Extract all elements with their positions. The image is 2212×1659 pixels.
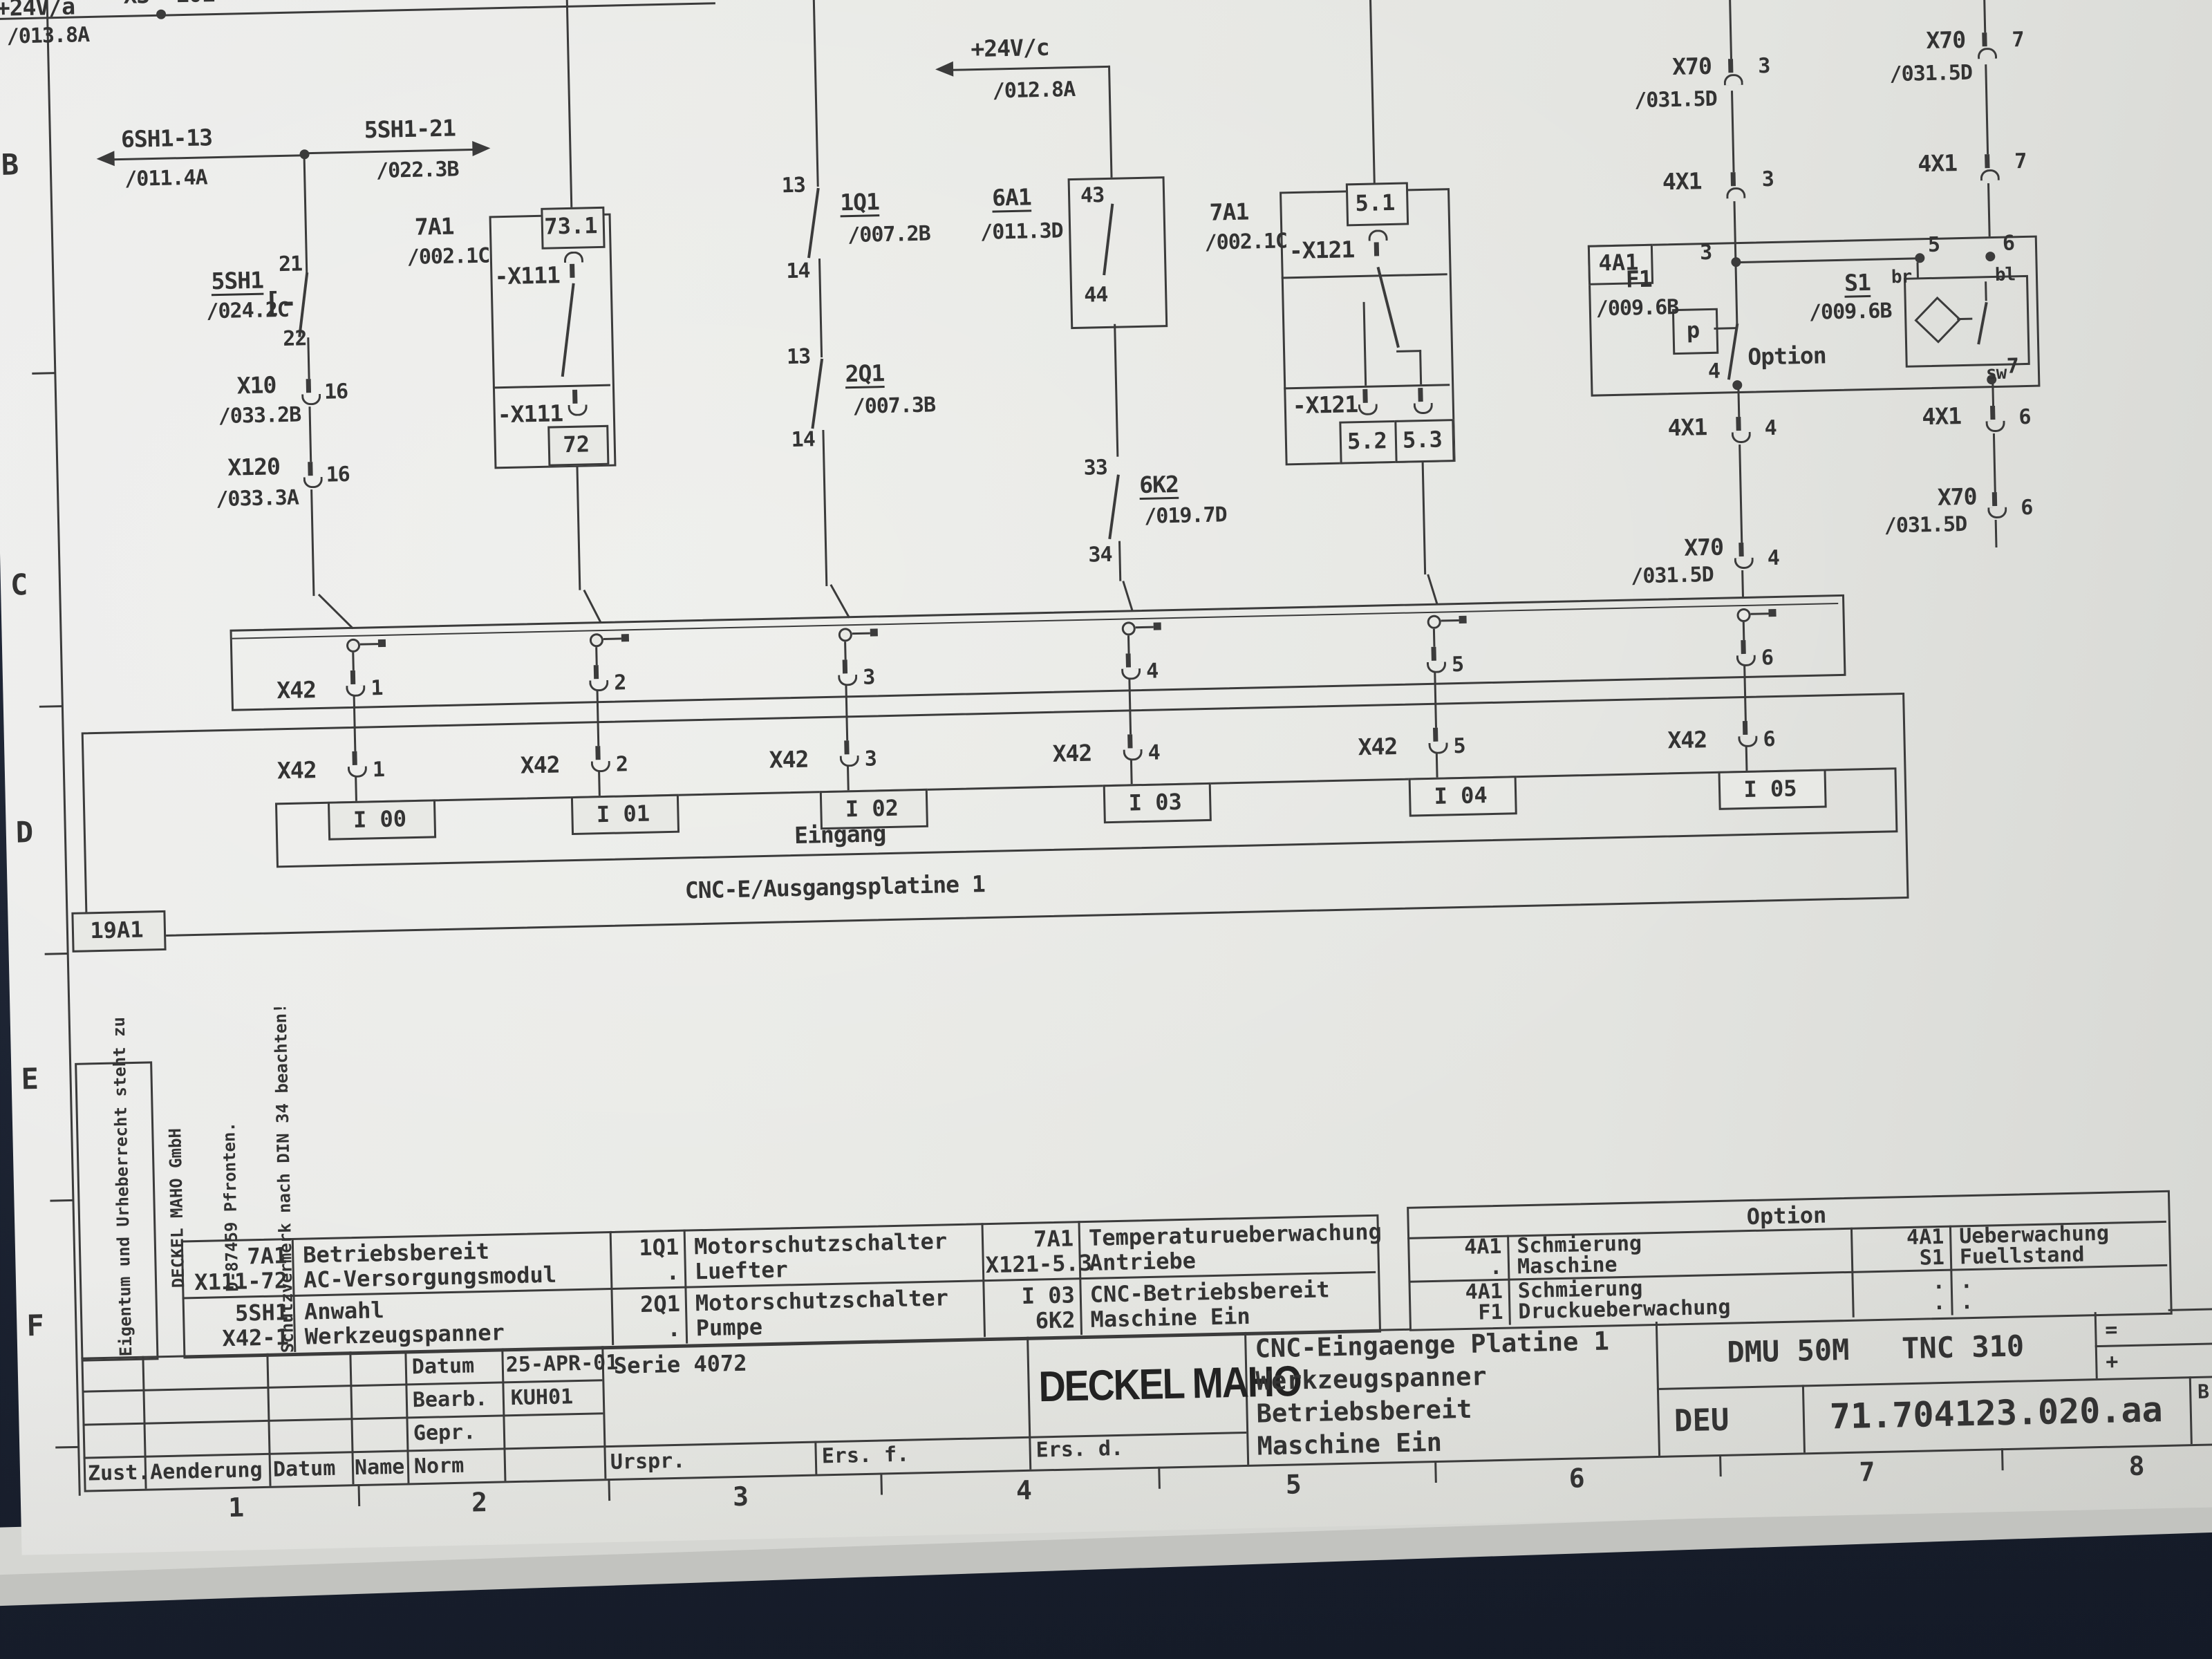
titleblock-line [814, 1441, 817, 1474]
legend-desc: Motorschutzschalter [694, 1228, 948, 1259]
legend-desc: Pumpe [695, 1313, 762, 1341]
input-i02: I 02 [820, 794, 924, 823]
frame-col-1: 1 [228, 1492, 244, 1523]
urspr-label: Urspr. [610, 1448, 686, 1476]
connector-socket-icon [301, 394, 321, 406]
conn-x42-row1: X42 [276, 676, 316, 704]
wire [844, 641, 847, 659]
device-1q1-ref: /007.2B [847, 222, 930, 248]
wire [1743, 622, 1745, 640]
corner-letter: B [2197, 1379, 2210, 1405]
connector-pin-icon [1741, 640, 1745, 654]
connector-pin-icon [1126, 653, 1131, 667]
connector-pin-icon [1374, 242, 1379, 256]
conn-4x1-3-pin: 3 [1761, 167, 1774, 191]
connector-pin-icon [1362, 389, 1367, 403]
connector-socket-icon [1978, 48, 1997, 59]
conn-x70-3-pin: 3 [1758, 54, 1770, 78]
board-ref: 19A1 [72, 916, 162, 944]
connector-socket-icon [1980, 169, 2000, 181]
conn-x42-row2: X42 [520, 751, 559, 778]
connector-socket-icon [303, 477, 323, 489]
contact-pin: 21 [279, 252, 303, 276]
wire [304, 149, 476, 154]
contact-pin: 22 [283, 326, 307, 351]
titleblock-line [2189, 1376, 2193, 1444]
conn-4x1-7: 4X1 [1918, 149, 1957, 177]
wire [303, 154, 308, 273]
datum-value: 25-APR-01 [505, 1350, 618, 1379]
wire [829, 584, 850, 618]
frame-col-4: 4 [1015, 1475, 1031, 1506]
rail-24vc-label: +24V/c [971, 34, 1049, 62]
frame-row-e: E [21, 1062, 38, 1096]
frame-col-7: 7 [1859, 1456, 1875, 1487]
connector-pin-icon [308, 462, 312, 476]
frame-col-3: 3 [733, 1481, 749, 1512]
legend-code: 5SH1 [186, 1299, 289, 1327]
input-strip [229, 594, 1846, 711]
wire-rail-24vc [952, 66, 1109, 71]
drawing-title-line: Betriebsbereit [1256, 1396, 1472, 1427]
connector-pin-icon [1731, 172, 1736, 186]
conn-x120-ref: /033.3A [216, 486, 299, 512]
input-i05: I 05 [1718, 775, 1823, 803]
junction-dot [156, 10, 166, 19]
contact-pin: 14 [786, 259, 810, 283]
ref-5sh1-21: 5SH1-21 [364, 114, 456, 143]
titleblock-line [1027, 1337, 1031, 1470]
rail-24va-label: +24V/a [0, 0, 75, 21]
machine-model: DMU 50M TNC 310 [1656, 1331, 2095, 1367]
connector-pin-icon [1743, 721, 1747, 735]
conn-4x1-4: 4X1 [1667, 413, 1707, 441]
connector-pin-icon [843, 659, 847, 673]
ref-6sh1-13-sheet: /011.4A [124, 165, 207, 191]
option-code: . [1412, 1257, 1503, 1280]
option-desc: Maschine [1517, 1255, 1618, 1277]
conn-x120-pin: 16 [326, 462, 350, 487]
wire [565, 0, 573, 214]
frame-col-5: 5 [1285, 1469, 1301, 1499]
conn-x42-row2-pin: 6 [1763, 727, 1775, 751]
wire [310, 489, 315, 596]
wire [1368, 0, 1376, 190]
wire-color-sw: sw [1986, 363, 2007, 384]
conn-x70-7-pin: 7 [2012, 28, 2024, 52]
rail-24vc-ref: /012.8A [992, 77, 1075, 104]
conn-x70-3: X70 [1672, 53, 1712, 80]
conn-x42-row2: X42 [277, 756, 317, 784]
copyright-line: Eigentum und Urheberrecht steht zu [111, 1062, 135, 1356]
connector-pin-icon [1992, 492, 1997, 506]
conn-x70-6-pin: 6 [2021, 496, 2033, 520]
conn-x10-ref: /033.2B [218, 402, 301, 429]
option-code: S1 [1856, 1248, 1945, 1271]
conn-x42-row2: X42 [769, 746, 808, 774]
connector-pin-icon [844, 740, 849, 754]
terminal-5-3: 5.3 [1395, 426, 1451, 453]
wire [1122, 581, 1134, 612]
wire [1731, 91, 1735, 172]
bearb-value: KUH01 [510, 1384, 573, 1412]
wire [1422, 458, 1427, 574]
contact-stub [360, 643, 378, 646]
contact-square-icon [1459, 616, 1466, 624]
frame-row-b: B [1, 147, 18, 182]
legend-code: 7A1 [985, 1225, 1074, 1253]
datum2-label: Datum [273, 1456, 336, 1483]
connector-pin-icon [1985, 154, 1989, 168]
legend-desc: Motorschutzschalter [695, 1284, 949, 1316]
wire [1108, 66, 1113, 178]
connector-pin-icon [595, 746, 600, 760]
frame-tick [55, 1446, 79, 1449]
contact-square-icon [1768, 609, 1776, 617]
conn-x111-top: -X111 [494, 261, 560, 290]
wire [1985, 64, 1989, 154]
legend-code: X111-72 [185, 1267, 288, 1295]
legend-code: . [615, 1315, 681, 1343]
conn-4x1-6: 4X1 [1922, 402, 1961, 430]
frame-left-border [46, 0, 81, 1496]
legend-code: X121-5.3 [985, 1250, 1074, 1278]
wire [1995, 520, 1998, 547]
frame-tick [358, 1484, 361, 1506]
wire [307, 337, 310, 379]
serie-label: Serie 4072 [613, 1350, 747, 1379]
conn-x121-top: -X121 [1288, 236, 1354, 264]
legend-desc: Antriebe [1089, 1248, 1196, 1276]
pin-4-label: 4 [1707, 359, 1720, 384]
eq-field: = [2105, 1317, 2118, 1343]
connector-socket-icon [1986, 421, 2005, 433]
frame-tick [608, 1479, 610, 1501]
conn-x42-row1-pin: 2 [614, 671, 626, 695]
switch-blade-1q1 [807, 188, 820, 259]
option-code: 4A1 [1412, 1237, 1502, 1259]
connector-socket-icon [1723, 74, 1743, 86]
legend-desc: Luefter [694, 1256, 788, 1284]
copyright-note: Eigentum und Urheberrecht steht zu DECKE… [75, 1062, 154, 1358]
conn-x42-row2-pin: 2 [616, 752, 628, 776]
conn-x70-4: X70 [1684, 534, 1723, 561]
switch-blade-6k2 [1108, 474, 1120, 539]
conn-x10: X10 [236, 371, 276, 399]
legend-code: . [615, 1259, 680, 1286]
input-i00: I 00 [328, 805, 432, 833]
conn-4x1-7-pin: 7 [2014, 149, 2027, 174]
arrow-right-icon [472, 140, 490, 156]
frame-tick [2001, 1448, 2004, 1470]
wire [583, 590, 602, 623]
connector-pin-icon [594, 665, 599, 679]
legend-desc: CNC-Betriebsbereit [1089, 1276, 1330, 1308]
name-label: Name [355, 1454, 405, 1482]
connector-socket-icon [1732, 432, 1751, 444]
contact-pin: 44 [1084, 283, 1108, 308]
contact-pin: 13 [781, 173, 805, 198]
terminal-5-2: 5.2 [1340, 427, 1396, 455]
conn-x70-3-ref: /031.5D [1634, 87, 1717, 113]
contact-square-icon [1154, 622, 1161, 630]
wire [1738, 444, 1743, 543]
contact-pin: 33 [1083, 456, 1107, 480]
wire [818, 259, 823, 357]
plus-field: + [2106, 1349, 2119, 1375]
legend-desc: Anwahl [304, 1297, 384, 1325]
wire-rail-24va [0, 2, 715, 20]
titleblock-top [2168, 1308, 2212, 1311]
frame-tick [32, 372, 55, 375]
frame-tick [880, 1472, 883, 1494]
wire [1114, 324, 1118, 457]
device-s1: S1 [1844, 269, 1871, 297]
drawing-title-line: CNC-Eingaenge Platine 1 [1255, 1328, 1609, 1362]
conn-x42-row2-pin: 1 [373, 758, 385, 782]
wire-color-bl: bl [1995, 264, 2016, 285]
wire [1737, 389, 1740, 417]
contact-pin: 14 [791, 427, 815, 452]
conn-x42-row2-pin: 4 [1147, 740, 1160, 765]
connector-pin-icon [572, 390, 577, 404]
conn-x42-row2-pin: 3 [864, 747, 877, 771]
conn-x42-row1-pin: 6 [1761, 646, 1774, 670]
pin-3-label: 3 [1700, 241, 1712, 265]
connector-pin-icon [306, 379, 311, 393]
wire [576, 463, 581, 590]
legend-code: X42-1 [186, 1324, 289, 1352]
wire [308, 406, 312, 462]
arrow-left-icon [96, 151, 114, 167]
document-number: 71.704123.020.aa [1809, 1396, 2183, 1430]
contact-stub [1441, 619, 1459, 622]
connector-pin-icon [1418, 388, 1423, 402]
bearb-label: Bearb. [412, 1386, 487, 1414]
contact-square-icon [378, 639, 386, 647]
conn-x70-6: X70 [1937, 483, 1976, 511]
conn-x70-7-ref: /031.5D [1889, 61, 1972, 87]
drawing-title-line: Maschine Ein [1257, 1430, 1442, 1460]
device-7a1-ref: /002.1C [406, 243, 489, 270]
frame-row-f: F [26, 1309, 44, 1343]
option-code: . [1857, 1293, 1946, 1315]
ref-6sh1-13: 6SH1-13 [121, 124, 213, 153]
frame-row-d: D [15, 815, 32, 850]
conn-x121-bot: -X121 [1292, 391, 1358, 419]
wire [113, 154, 305, 160]
frame-tick [50, 1199, 73, 1202]
conn-x42-row1-pin: 5 [1452, 653, 1464, 677]
rail-24va-ref: /013.8A [6, 23, 89, 49]
frame-col-6: 6 [1568, 1463, 1584, 1493]
frame-col-8: 8 [2128, 1451, 2144, 1481]
contact-stub [603, 637, 621, 640]
conn-x42-row1-pin: 3 [863, 665, 875, 689]
wire [1987, 183, 1991, 236]
connector-pin-icon [1127, 734, 1132, 748]
terminal-72: 72 [547, 431, 605, 458]
wire [1993, 433, 1996, 492]
language-code: DEU [1674, 1407, 1730, 1435]
schematic-sheet: +24V/a /013.8A X3 101 6SH1-13 /011.4A 5S… [0, 0, 2212, 1555]
device-f1: F1 [1625, 265, 1652, 293]
connector-socket-icon [1734, 558, 1754, 570]
option-label: Option [1747, 341, 1826, 370]
legend-code: I 03 [986, 1282, 1075, 1310]
legend-code: 6K2 [986, 1306, 1076, 1335]
conn-x70-4-pin: 4 [1767, 546, 1779, 570]
legend-desc: Werkzeugspanner [304, 1319, 505, 1349]
pressure-symbol: p [1672, 317, 1714, 344]
contact-stub [852, 632, 870, 635]
titleblock-line [1802, 1385, 1806, 1452]
wire [318, 594, 354, 629]
wire [1727, 0, 1732, 59]
wire [1118, 541, 1121, 581]
connector-pin-icon [1982, 32, 1987, 46]
input-i01: I 01 [571, 800, 675, 828]
device-6k2-ref: /019.7D [1144, 503, 1227, 529]
wire [1427, 574, 1438, 606]
option-desc: . [1960, 1292, 1974, 1313]
wire [1741, 570, 1744, 598]
conn-x70-4-ref: /031.5D [1631, 563, 1714, 589]
aenderung-label: Aenderung [150, 1457, 263, 1486]
contact-pin: 43 [1080, 183, 1105, 208]
option-desc: Druckueberwachung [1518, 1297, 1731, 1323]
legend-desc: Maschine Ein [1090, 1303, 1250, 1333]
conn-x42-row2: X42 [1052, 740, 1091, 767]
connector-pin-icon [1990, 406, 1995, 420]
contact-stub [1136, 626, 1154, 629]
contact-square-icon [870, 628, 878, 636]
contact-square-icon [621, 634, 629, 641]
option-code: F1 [1413, 1302, 1503, 1325]
device-2q1-ref: /007.3B [852, 393, 935, 419]
conn-x42-row2: X42 [1667, 726, 1707, 753]
connector-pin-icon [1431, 647, 1436, 661]
zust-label: Zust. [88, 1460, 151, 1488]
wire-color-br: br [1891, 267, 1912, 288]
device-1q1: 1Q1 [840, 188, 879, 216]
device-5sh1: 5SH1 [211, 267, 263, 295]
frame-row-c: C [10, 568, 27, 602]
device-s1-ref: /009.6B [1809, 299, 1892, 325]
contact-stub [1750, 612, 1768, 615]
conn-x111-bot: -X111 [497, 400, 563, 428]
device-7a1-2-ref: /002.1C [1204, 229, 1287, 255]
frame-tick [1719, 1454, 1722, 1477]
contact-pin: 13 [787, 344, 811, 369]
conn-4x1-6-pin: 6 [2018, 405, 2031, 429]
device-6a1-ref: /011.3D [980, 218, 1063, 245]
ers-d-label: Ers. d. [1035, 1436, 1123, 1464]
connector-pin-icon [350, 671, 355, 684]
pin-7-label: 7 [2006, 354, 2018, 378]
conn-x42-row2: X42 [1358, 733, 1397, 760]
device-7a1: 7A1 [414, 213, 453, 241]
x3-junction-label: X3 101 [123, 0, 215, 9]
wire [1985, 281, 1987, 301]
contact-pin: 34 [1088, 543, 1112, 568]
connector-pin-icon [352, 751, 357, 765]
wire [352, 653, 355, 671]
device-2q1: 2Q1 [845, 359, 884, 387]
conn-x70-7: X70 [1926, 26, 1965, 54]
junction-dot [299, 149, 309, 159]
frame-tick [1158, 1467, 1161, 1489]
pin-5-label: 5 [1928, 233, 1940, 257]
conn-x42-row2-pin: 5 [1453, 734, 1465, 758]
legend-code: 1Q1 [614, 1234, 679, 1262]
switch-blade-2q1 [811, 359, 823, 429]
ref-5sh1-21-sheet: /022.3B [376, 157, 459, 183]
eingang-label: Eingang [794, 820, 886, 849]
titleblock-row-line [83, 1412, 603, 1425]
device-f1-ref: /009.6B [1595, 295, 1678, 321]
frame-tick [45, 953, 68, 955]
titleblock-row-line [1657, 1376, 2212, 1390]
frame-tick [1434, 1461, 1437, 1483]
arrow-left-icon [935, 62, 953, 77]
connector-pin-icon [570, 264, 574, 278]
frame-col-2: 2 [471, 1487, 487, 1517]
conn-x42-row1-pin: 4 [1146, 659, 1159, 684]
connector-socket-icon [1726, 187, 1745, 199]
legend-code: 2Q1 [615, 1291, 681, 1318]
conn-4x1-3: 4X1 [1662, 167, 1701, 195]
photo-of-schematic: { "colors": {"paper":"#e8e9e5","ink":"#3… [0, 0, 2212, 1659]
legend-desc: AC-Versorgungsmodul [303, 1262, 557, 1293]
wire [1916, 262, 1919, 279]
connector-pin-icon [1433, 728, 1438, 742]
option-code: . [1856, 1272, 1945, 1295]
connector-pin-icon [1728, 59, 1733, 73]
wire [1127, 635, 1130, 653]
frame-tick [39, 705, 63, 708]
wire [822, 430, 827, 586]
wire [1982, 0, 1986, 32]
conn-x120: X120 [227, 453, 280, 481]
connector-pin-icon [1738, 543, 1743, 556]
ers-f-label: Ers. f. [821, 1442, 909, 1470]
drawing-title-line: Werkzeugspanner [1255, 1363, 1487, 1394]
conn-4x1-4-pin: 4 [1764, 416, 1777, 440]
device-5sh1-ref: /024.2C [206, 298, 289, 324]
conn-x70-6-ref: /031.5D [1884, 512, 1967, 538]
device-6k2: 6K2 [1139, 471, 1179, 498]
conn-x42-row1-pin: 1 [371, 676, 383, 700]
wire [1733, 201, 1736, 242]
pin-6-label: 6 [2003, 231, 2015, 255]
wire [595, 647, 598, 665]
norm-label: Norm [414, 1453, 465, 1481]
connector-pin-icon [1736, 417, 1741, 431]
wire [1433, 629, 1436, 647]
device-7a1-2: 7A1 [1209, 198, 1248, 225]
conn-x10-pin: 16 [324, 379, 348, 404]
gepr-label: Gepr. [413, 1419, 476, 1447]
datum-label: Datum [411, 1353, 474, 1380]
legend-code: 7A1 [185, 1242, 288, 1271]
wire [812, 0, 819, 187]
option-desc: Fuellstand [1960, 1244, 2085, 1268]
option-desc: . [1960, 1271, 1973, 1292]
input-i03: I 03 [1103, 788, 1208, 816]
terminal-73-1: 73.1 [541, 212, 601, 240]
device-6a1: 6A1 [992, 183, 1031, 211]
